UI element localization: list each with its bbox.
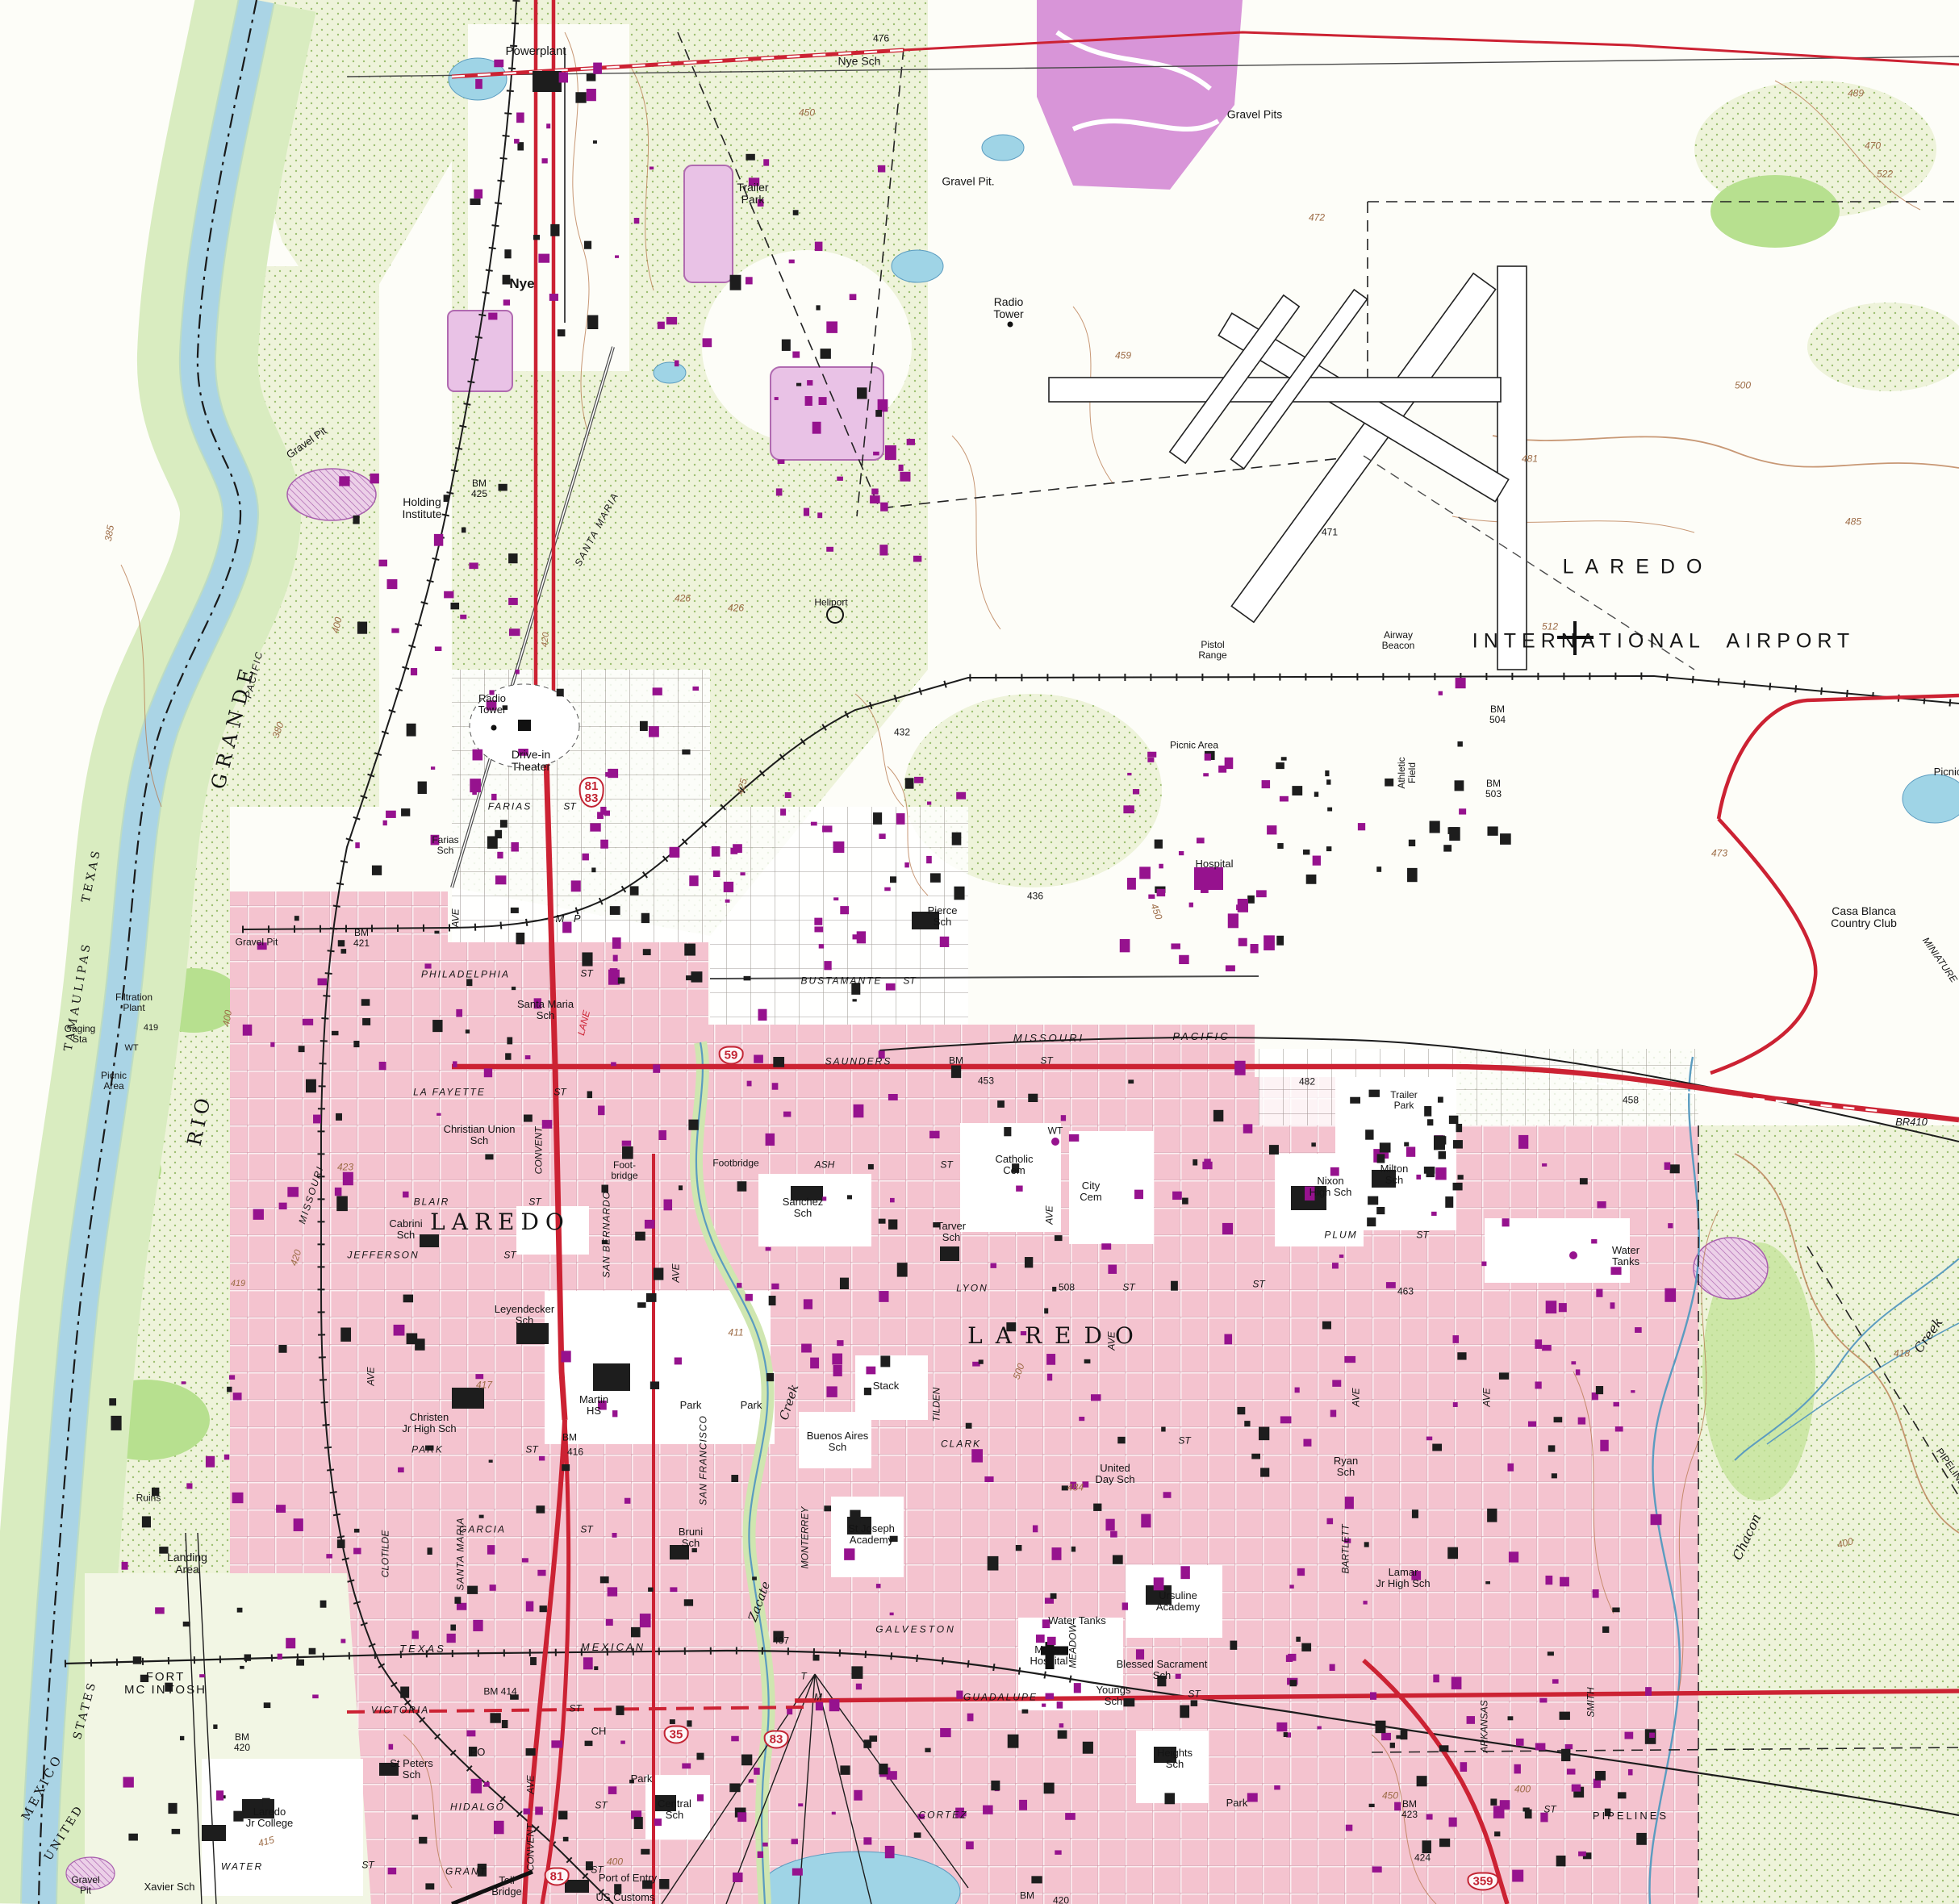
urban-areas — [230, 670, 1698, 1904]
map-canvas — [0, 0, 1959, 1904]
radio-tower-icon — [491, 725, 497, 731]
water-tank-icon — [1051, 1138, 1059, 1146]
gravel-pit-hatch — [287, 469, 376, 520]
city-cemetery — [1069, 1131, 1154, 1244]
topo-map: PowerplantNye Sch476Gravel PitsGravel Pi… — [0, 0, 1959, 1904]
water-tank-icon — [1569, 1251, 1577, 1259]
runway-cross — [1557, 621, 1594, 655]
radio-tower-icon — [1008, 322, 1013, 328]
catholic-cemetery — [960, 1123, 1061, 1232]
water-tanks-pond — [1694, 1238, 1768, 1299]
